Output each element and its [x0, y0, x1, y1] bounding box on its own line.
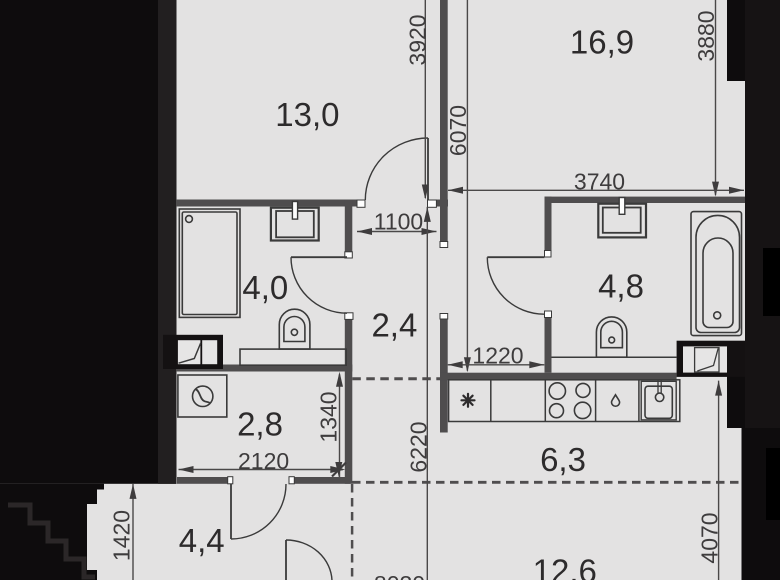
svg-text:16,9: 16,9 — [570, 24, 634, 61]
svg-text:4070: 4070 — [696, 512, 722, 563]
svg-text:4,8: 4,8 — [598, 267, 644, 304]
svg-text:3880: 3880 — [693, 10, 719, 61]
svg-text:1220: 1220 — [472, 343, 523, 369]
svg-text:6070: 6070 — [445, 105, 471, 156]
svg-text:6220: 6220 — [405, 421, 431, 472]
svg-text:3920: 3920 — [405, 14, 431, 65]
svg-text:1420: 1420 — [108, 510, 134, 561]
svg-text:3740: 3740 — [574, 169, 625, 195]
svg-text:2120: 2120 — [238, 448, 289, 474]
svg-text:8030: 8030 — [374, 571, 425, 580]
svg-text:4,4: 4,4 — [179, 522, 225, 559]
svg-text:12,6: 12,6 — [533, 552, 597, 580]
svg-text:1100: 1100 — [374, 208, 423, 234]
svg-text:6,3: 6,3 — [540, 441, 586, 478]
svg-text:1340: 1340 — [316, 391, 342, 442]
svg-text:13,0: 13,0 — [275, 96, 339, 133]
svg-text:2,4: 2,4 — [371, 306, 417, 343]
svg-text:4,0: 4,0 — [242, 269, 288, 306]
svg-text:2,8: 2,8 — [237, 405, 283, 442]
